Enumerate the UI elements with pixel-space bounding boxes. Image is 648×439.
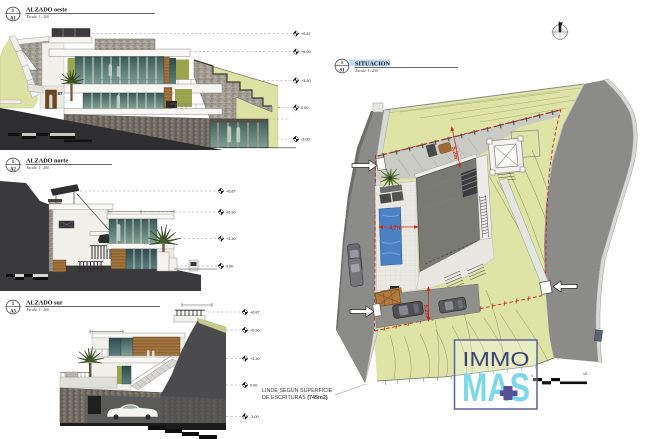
svg-text:-3.00: -3.00 [301, 138, 310, 142]
svg-text:LINDE SEGUN SUPERFICIE: LINDE SEGUN SUPERFICIE [262, 388, 333, 394]
svg-text:0.00: 0.00 [250, 384, 257, 388]
svg-text:A1: A1 [10, 16, 16, 21]
svg-text:+6.90: +6.90 [250, 329, 260, 333]
svg-text:ALZADO sur: ALZADO sur [26, 299, 63, 306]
svg-text:+6.90: +6.90 [301, 50, 311, 54]
svg-text:Escala 1 : 200: Escala 1 : 200 [26, 15, 49, 19]
svg-text:DE ESCRITURAS (745m2): DE ESCRITURAS (745m2) [262, 395, 328, 401]
svg-text:A2: A2 [10, 167, 16, 172]
svg-text:-3.00: -3.00 [250, 415, 259, 419]
svg-text:0.00: 0.00 [226, 265, 233, 269]
svg-text:+3.30: +3.30 [301, 79, 311, 83]
svg-text:S1: S1 [339, 68, 345, 73]
svg-text:+6.87: +6.87 [226, 190, 236, 194]
svg-text:A3: A3 [10, 309, 16, 314]
svg-text:SITUACION: SITUACION [355, 60, 391, 67]
svg-text:87: 87 [58, 91, 64, 96]
svg-text:+6.87: +6.87 [301, 32, 311, 36]
svg-text:4,7m: 4,7m [389, 226, 402, 232]
svg-text:+6.87: +6.87 [250, 311, 260, 315]
svg-text:10: 10 [583, 372, 587, 376]
svg-text:ALZADO norte: ALZADO norte [26, 157, 68, 164]
svg-text:+3.30: +3.30 [226, 237, 236, 241]
svg-text:0.00: 0.00 [301, 106, 308, 110]
svg-text:MAS: MAS [462, 366, 530, 410]
svg-text:ALZADO oeste: ALZADO oeste [26, 6, 67, 13]
svg-text:Escala 1 : 200: Escala 1 : 200 [26, 166, 49, 170]
svg-text:+6.90: +6.90 [226, 211, 236, 215]
svg-text:+3.30: +3.30 [250, 357, 260, 361]
svg-text:Escala 1 : 250: Escala 1 : 250 [355, 69, 378, 73]
svg-text:Escala 1 : 200: Escala 1 : 200 [26, 308, 49, 312]
